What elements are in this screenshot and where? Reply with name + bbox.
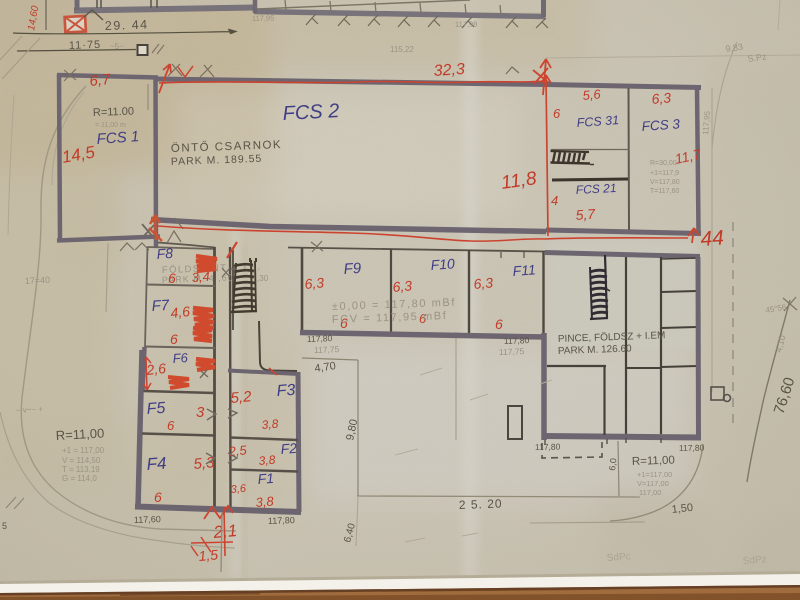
svg-text:F5: F5 (146, 400, 166, 418)
svg-text:115,22: 115,22 (390, 45, 414, 54)
svg-text:117,95: 117,95 (252, 14, 275, 23)
svg-text:F4: F4 (146, 454, 167, 474)
svg-text:+1 = 117,00: +1 = 117,00 (62, 446, 105, 455)
svg-text:6,3: 6,3 (304, 274, 325, 292)
svg-text:FCS 31: FCS 31 (576, 113, 619, 130)
svg-text:SdPc: SdPc (606, 551, 631, 564)
svg-text:6,0: 6,0 (607, 458, 618, 472)
svg-text:5: 5 (2, 521, 7, 531)
svg-text:117,75: 117,75 (314, 344, 340, 355)
svg-text:FCS 21: FCS 21 (575, 181, 616, 197)
svg-text:T=117,60: T=117,60 (650, 188, 679, 195)
svg-text:3,8: 3,8 (255, 493, 275, 510)
svg-text:6: 6 (170, 331, 178, 347)
svg-text:FCS 1: FCS 1 (96, 128, 140, 148)
svg-text:4: 4 (551, 193, 558, 208)
svg-text:F10: F10 (430, 255, 455, 273)
svg-text:,30: ,30 (257, 274, 269, 283)
svg-text:2,6: 2,6 (145, 360, 167, 378)
svg-text:117,75: 117,75 (499, 346, 525, 357)
svg-text:T = 113,19: T = 113,19 (62, 465, 100, 474)
svg-text:6,3: 6,3 (392, 277, 413, 295)
svg-text:2,1: 2,1 (212, 521, 238, 542)
svg-text:V=117,80: V=117,80 (650, 179, 680, 186)
svg-text:5,6: 5,6 (582, 86, 602, 103)
svg-text:FCS 2: FCS 2 (282, 100, 340, 125)
svg-text:V = 114,50: V = 114,50 (62, 456, 101, 465)
svg-text:6: 6 (154, 489, 162, 505)
svg-text:117,60: 117,60 (134, 514, 161, 525)
svg-text:F9: F9 (343, 260, 362, 278)
svg-text:4,6: 4,6 (170, 303, 191, 321)
svg-text:5,7: 5,7 (575, 206, 597, 223)
svg-text:1,5: 1,5 (198, 546, 219, 564)
svg-text:17=40: 17=40 (25, 275, 51, 286)
svg-text:3,8: 3,8 (258, 453, 276, 468)
svg-text:R=11.00: R=11.00 (93, 106, 134, 119)
svg-text:117,98: 117,98 (455, 20, 478, 29)
svg-text:3,6: 3,6 (230, 483, 247, 496)
svg-text:3,8: 3,8 (261, 417, 279, 432)
svg-text:= 11,00 m: = 11,00 m (95, 122, 126, 129)
svg-text:2 5. 20: 2 5. 20 (459, 496, 503, 512)
svg-text:32,3: 32,3 (433, 61, 465, 80)
svg-text:117,80: 117,80 (679, 443, 705, 453)
svg-text:F7: F7 (151, 297, 170, 315)
svg-text:3,4: 3,4 (191, 269, 210, 285)
svg-text:R=30,00: R=30,00 (650, 160, 677, 167)
svg-text:F1: F1 (257, 470, 274, 487)
svg-text:3: 3 (196, 404, 205, 421)
svg-text:F6: F6 (172, 350, 189, 366)
svg-text:SdPz: SdPz (742, 554, 767, 567)
svg-text:6: 6 (553, 106, 561, 121)
svg-text:G = 114,0: G = 114,0 (62, 474, 97, 483)
svg-text:F11: F11 (512, 261, 536, 279)
svg-text:V=117,00: V=117,00 (637, 479, 669, 488)
svg-text:117,80: 117,80 (535, 442, 561, 452)
svg-text:FCS 3: FCS 3 (641, 116, 681, 134)
svg-text:44: 44 (700, 226, 725, 251)
svg-text:29. 44: 29. 44 (105, 17, 149, 33)
svg-text:F2: F2 (280, 440, 298, 457)
svg-text:+1=117,00: +1=117,00 (637, 470, 672, 479)
svg-text:6: 6 (495, 316, 503, 332)
svg-text:6,7: 6,7 (89, 71, 112, 90)
svg-text:2,5: 2,5 (227, 442, 248, 459)
svg-text:~ v~~ +: ~ v~~ + (16, 405, 44, 415)
svg-text:F3: F3 (276, 382, 296, 400)
svg-text:6: 6 (167, 418, 175, 433)
svg-text:5,2: 5,2 (230, 388, 253, 407)
svg-text:117,80: 117,80 (504, 335, 530, 346)
svg-text:6,3: 6,3 (473, 274, 494, 292)
svg-text:117,00: 117,00 (639, 488, 661, 497)
svg-text:F8: F8 (156, 245, 174, 262)
svg-text:6,3: 6,3 (651, 89, 672, 107)
svg-text:R=11,00: R=11,00 (55, 425, 104, 443)
svg-text:1,50: 1,50 (671, 502, 694, 516)
svg-text:117,80: 117,80 (268, 515, 295, 526)
svg-text:R=11,00: R=11,00 (632, 455, 675, 468)
svg-text:6: 6 (168, 270, 176, 286)
svg-text:+1=117,9: +1=117,9 (650, 170, 679, 177)
svg-text:117,80: 117,80 (307, 333, 333, 344)
